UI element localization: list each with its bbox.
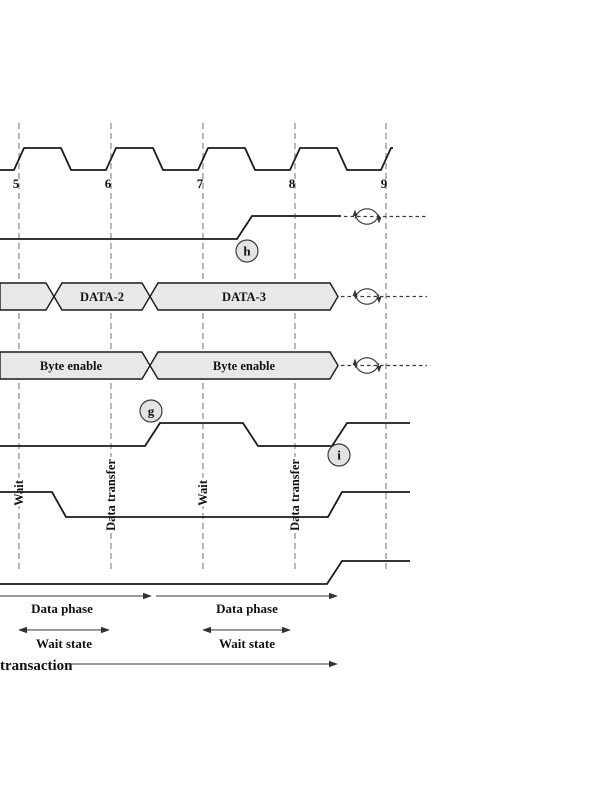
point-label-h: h xyxy=(243,244,251,259)
bus-segment-label: Byte enable xyxy=(40,359,103,373)
bus-segment-label: Byte enable xyxy=(213,359,276,373)
clock-tick-label: 7 xyxy=(197,176,204,191)
arrowhead-icon xyxy=(143,593,152,599)
point-label-g: g xyxy=(148,404,155,419)
clock-tick-label: 6 xyxy=(105,176,112,191)
wait-state-label: Wait state xyxy=(219,636,275,651)
phase-label-data-transfer-1: Data transfer xyxy=(104,459,118,531)
bus-segment-label: DATA-3 xyxy=(222,290,266,304)
arrowhead-icon xyxy=(329,661,338,667)
phase-label-wait-2: Wait xyxy=(196,479,210,506)
wait-state-annotations: Wait state Wait state xyxy=(18,627,291,651)
signal-3-trace xyxy=(0,561,410,584)
arrowhead-icon xyxy=(282,627,291,633)
data-bus-row: DATA-2 DATA-3 xyxy=(0,283,427,310)
clock-tick-labels: 5 6 7 8 9 xyxy=(13,176,388,191)
clock-tick-label: 9 xyxy=(381,176,388,191)
clock-tick-label: 8 xyxy=(289,176,296,191)
signal-h-trace xyxy=(0,216,341,239)
data-phase-label: Data phase xyxy=(31,601,93,616)
transaction-annotation: transaction xyxy=(0,658,338,674)
wait-state-label: Wait state xyxy=(36,636,92,651)
signal-gi-row: g i xyxy=(0,400,410,466)
arrowhead-icon xyxy=(202,627,211,633)
timing-diagram-figure: 5 6 7 8 9 h DATA-2 DATA-3 Byte enab xyxy=(0,0,604,800)
arrowhead-icon xyxy=(18,627,27,633)
byte-enable-row: Byte enable Byte enable xyxy=(0,352,427,379)
data-phase-label: Data phase xyxy=(216,601,278,616)
signal-gi-trace xyxy=(0,423,410,446)
rotated-phase-labels: Wait Data transfer Wait Data transfer xyxy=(12,459,302,531)
bus-segment-data-prev xyxy=(0,283,54,310)
phase-label-data-transfer-2: Data transfer xyxy=(288,459,302,531)
data-phase-annotations: Data phase Data phase xyxy=(0,593,338,616)
arrowhead-icon xyxy=(329,593,338,599)
point-label-i: i xyxy=(337,448,341,463)
signal-h-row: h xyxy=(0,209,427,262)
clock-tick-label: 5 xyxy=(13,176,20,191)
bus-segment-label: DATA-2 xyxy=(80,290,124,304)
arrowhead-icon xyxy=(101,627,110,633)
transaction-label: transaction xyxy=(0,658,73,674)
clock-trace xyxy=(0,148,393,170)
timing-diagram-canvas: 5 6 7 8 9 h DATA-2 DATA-3 Byte enab xyxy=(0,0,604,800)
